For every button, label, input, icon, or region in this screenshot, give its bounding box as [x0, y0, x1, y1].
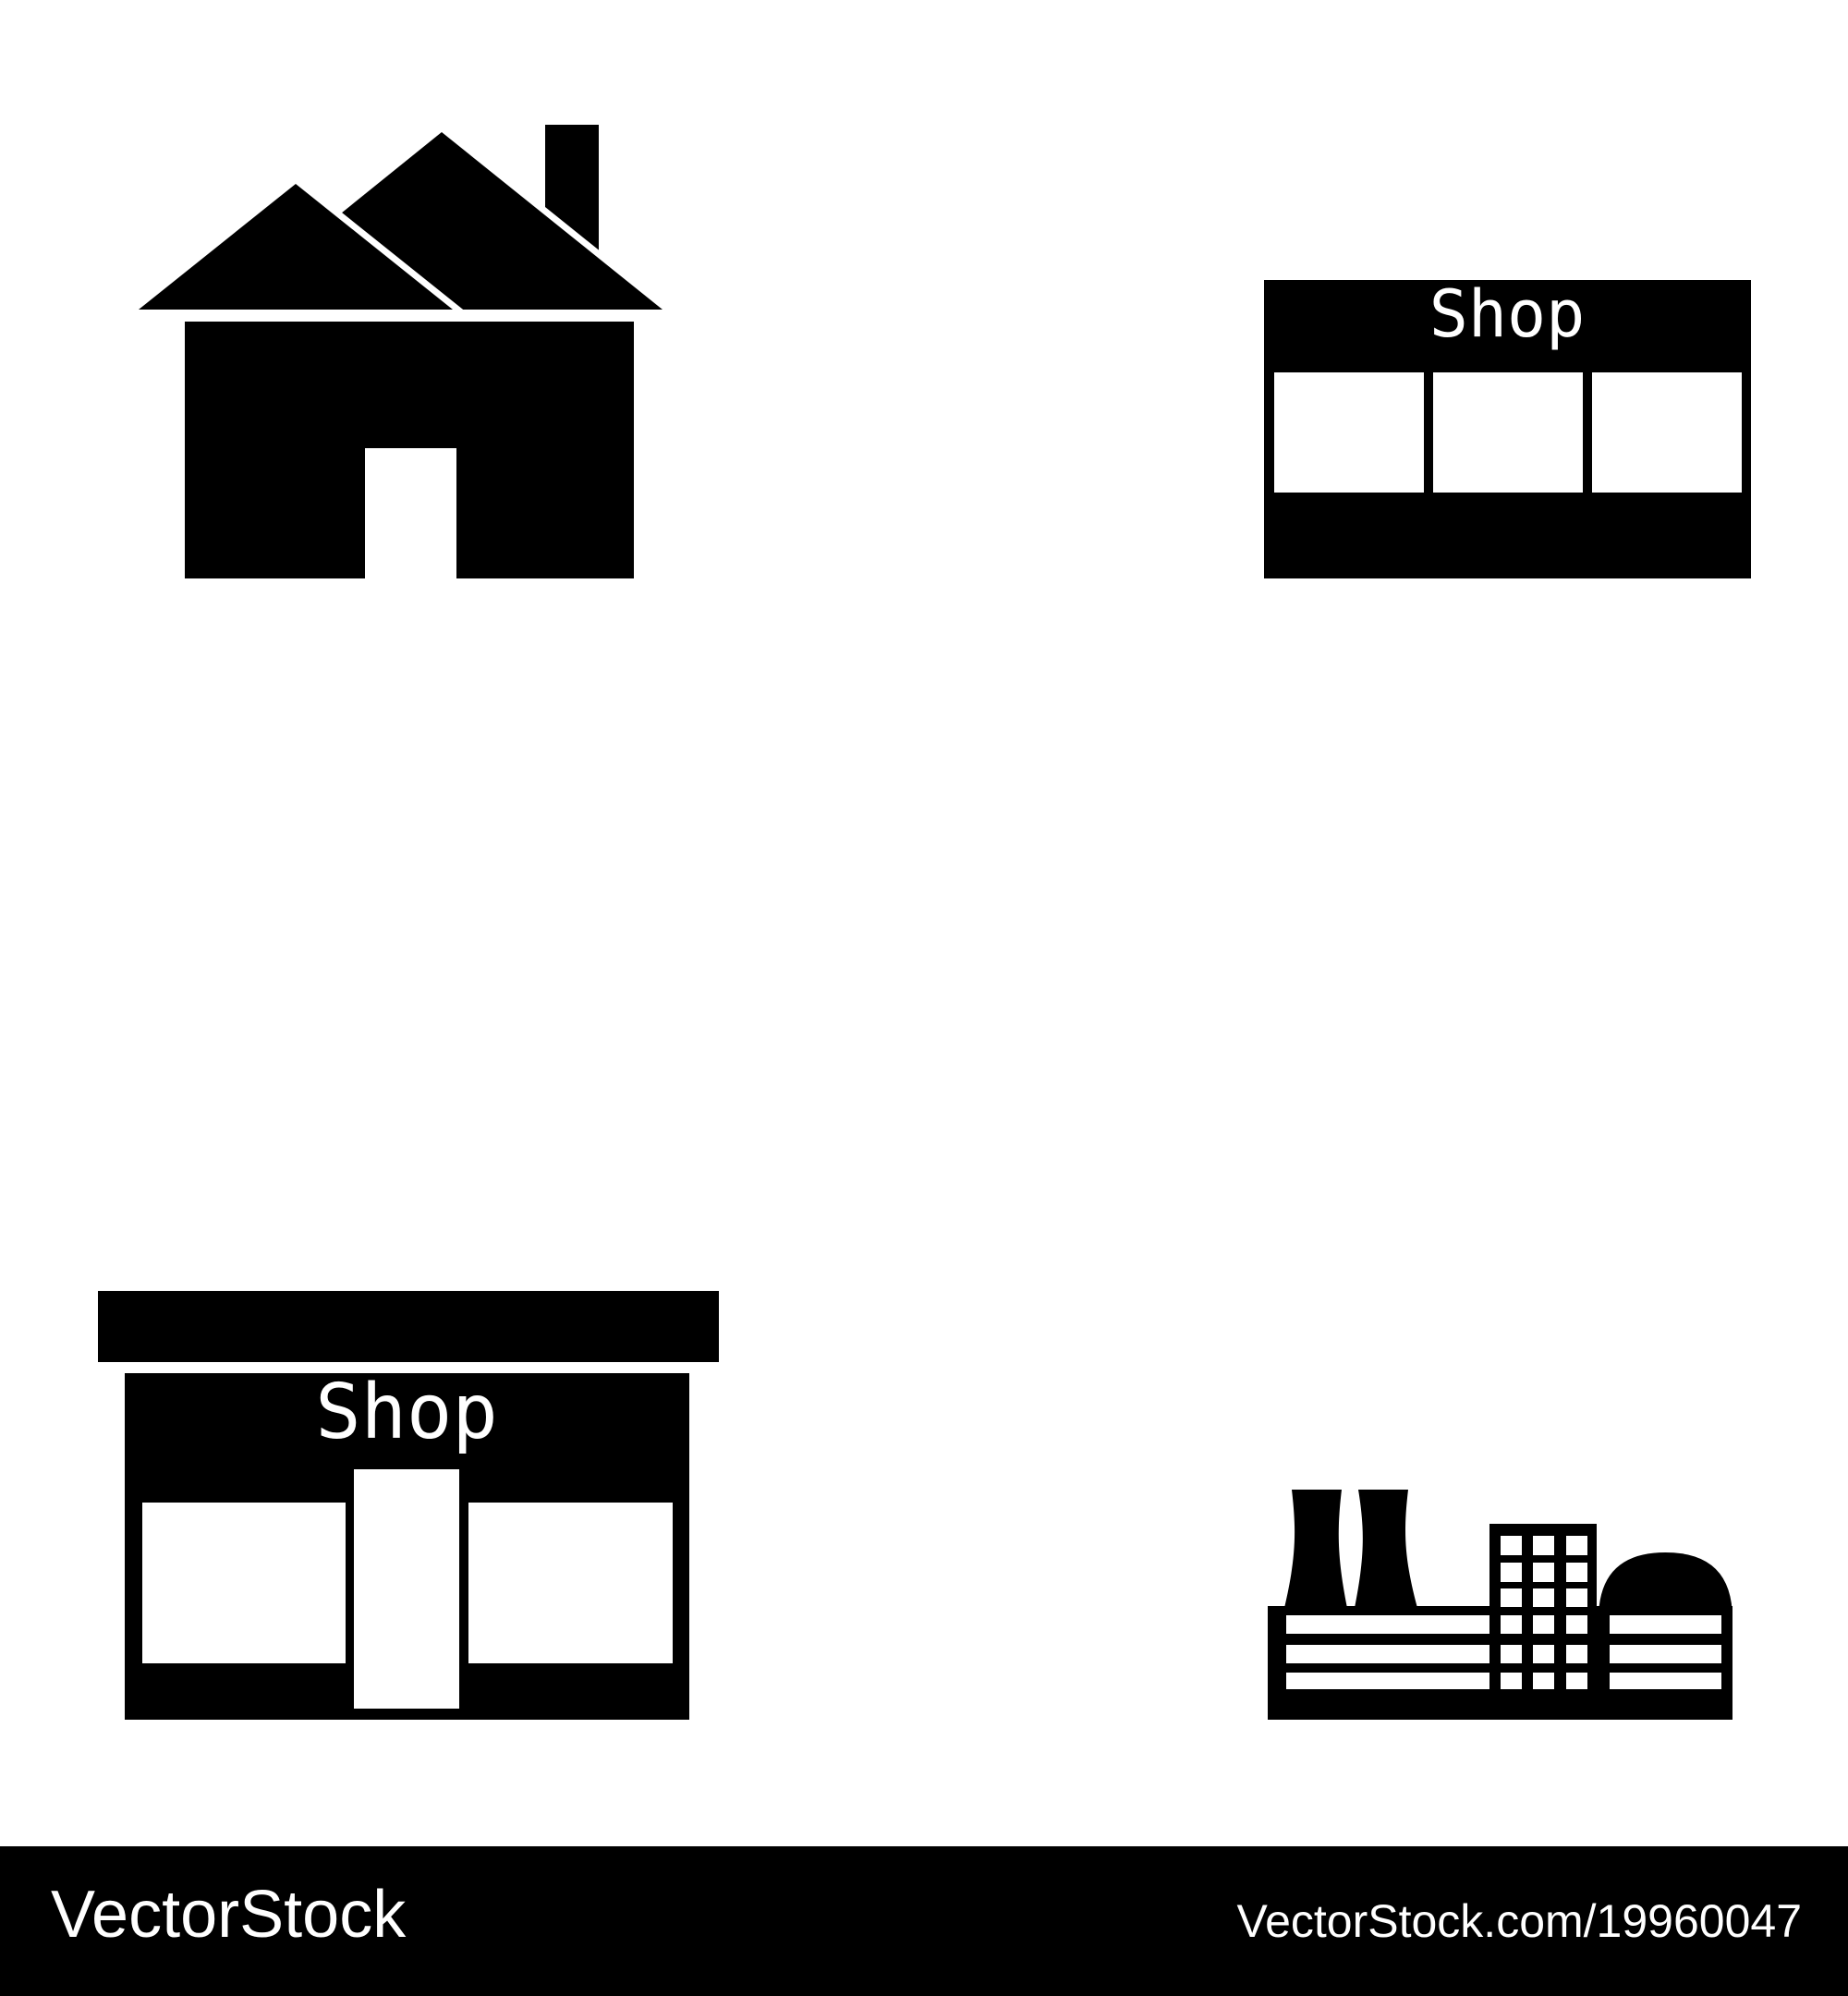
- factory-shape: [1268, 1490, 1732, 1720]
- shop-front-shape: Shop: [1264, 276, 1751, 578]
- factory-hall-stripe-3: [1286, 1673, 1489, 1689]
- shop-front-window-2: [1433, 372, 1583, 493]
- factory-cooling-tower-1: [1284, 1490, 1347, 1608]
- house-icon: [111, 111, 684, 591]
- factory-window: [1533, 1563, 1554, 1582]
- factory-hall-stripes: [1286, 1615, 1489, 1689]
- factory-silo-stripe-2: [1610, 1645, 1721, 1663]
- footer-credit-url: VectorStock.com/19960047: [1237, 1898, 1803, 1944]
- house-shape: [139, 125, 663, 578]
- factory-hall-stripe-2: [1286, 1645, 1489, 1663]
- factory-window: [1566, 1645, 1587, 1663]
- factory-window: [1566, 1615, 1587, 1634]
- factory-window: [1533, 1645, 1554, 1663]
- factory-window: [1501, 1588, 1522, 1607]
- factory-window: [1566, 1673, 1587, 1689]
- shop-awning-roof: [98, 1291, 719, 1362]
- footer-watermark-bar: VectorStock VectorStock.com/19960047: [0, 1846, 1848, 1996]
- stock-image-canvas: Shop Shop: [0, 0, 1848, 1996]
- shop-front-icon: Shop: [1247, 268, 1765, 591]
- factory-window: [1533, 1588, 1554, 1607]
- shop-front-window-1: [1274, 372, 1424, 493]
- footer-brand-logo: VectorStock: [51, 1881, 406, 1948]
- factory-icon: [1257, 1479, 1746, 1728]
- factory-hall-stripe-1: [1286, 1615, 1489, 1634]
- factory-window: [1566, 1588, 1587, 1607]
- factory-silo-stripe-1: [1610, 1615, 1721, 1634]
- house-door: [365, 448, 456, 578]
- factory-cooling-tower-2: [1355, 1490, 1417, 1608]
- factory-silo-stripes: [1610, 1615, 1721, 1689]
- shop-awning-door: [354, 1469, 459, 1709]
- factory-window: [1533, 1536, 1554, 1555]
- factory-window: [1501, 1563, 1522, 1582]
- factory-silo-dome: [1599, 1552, 1732, 1720]
- shop-awning-window-right: [468, 1503, 673, 1663]
- shop-awning-icon: Shop: [88, 1284, 730, 1728]
- factory-silo-stripe-3: [1610, 1673, 1721, 1689]
- shop-awning-window-left: [142, 1503, 346, 1663]
- factory-window: [1566, 1536, 1587, 1555]
- shop-front-windows: [1274, 372, 1742, 493]
- factory-window: [1533, 1615, 1554, 1634]
- factory-window: [1533, 1673, 1554, 1689]
- shop-awning-sign-text: Shop: [315, 1369, 497, 1456]
- shop-front-window-3: [1592, 372, 1742, 493]
- factory-window: [1501, 1615, 1522, 1634]
- factory-window: [1501, 1673, 1522, 1689]
- factory-window: [1501, 1645, 1522, 1663]
- shop-front-sign-text: Shop: [1429, 276, 1586, 352]
- factory-window: [1566, 1563, 1587, 1582]
- factory-window: [1501, 1536, 1522, 1555]
- shop-awning-shape: Shop: [98, 1291, 719, 1720]
